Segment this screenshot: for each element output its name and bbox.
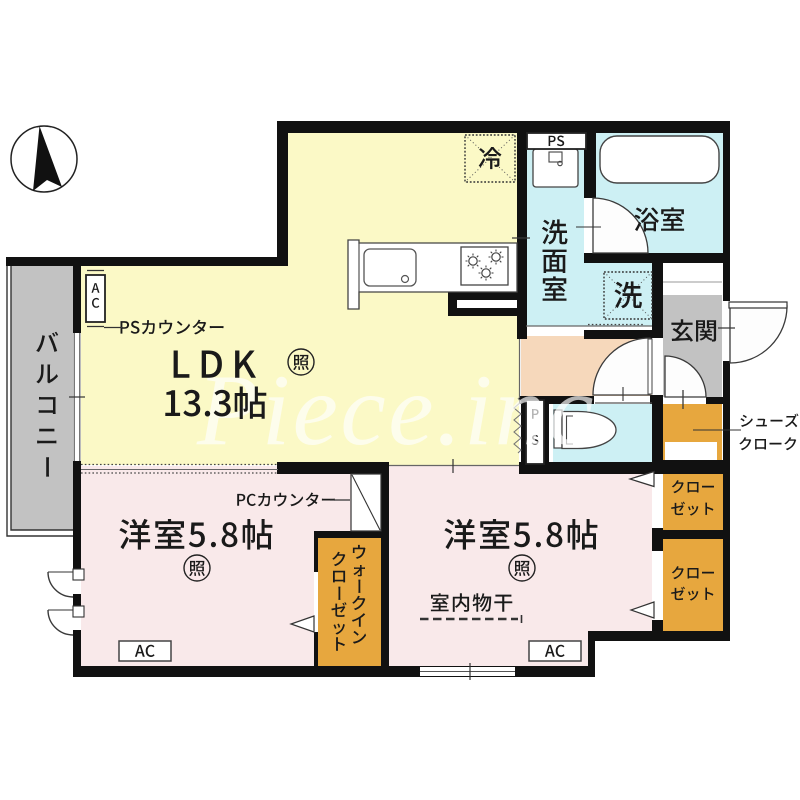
- svg-text:Piece.inc: Piece.inc: [196, 354, 596, 467]
